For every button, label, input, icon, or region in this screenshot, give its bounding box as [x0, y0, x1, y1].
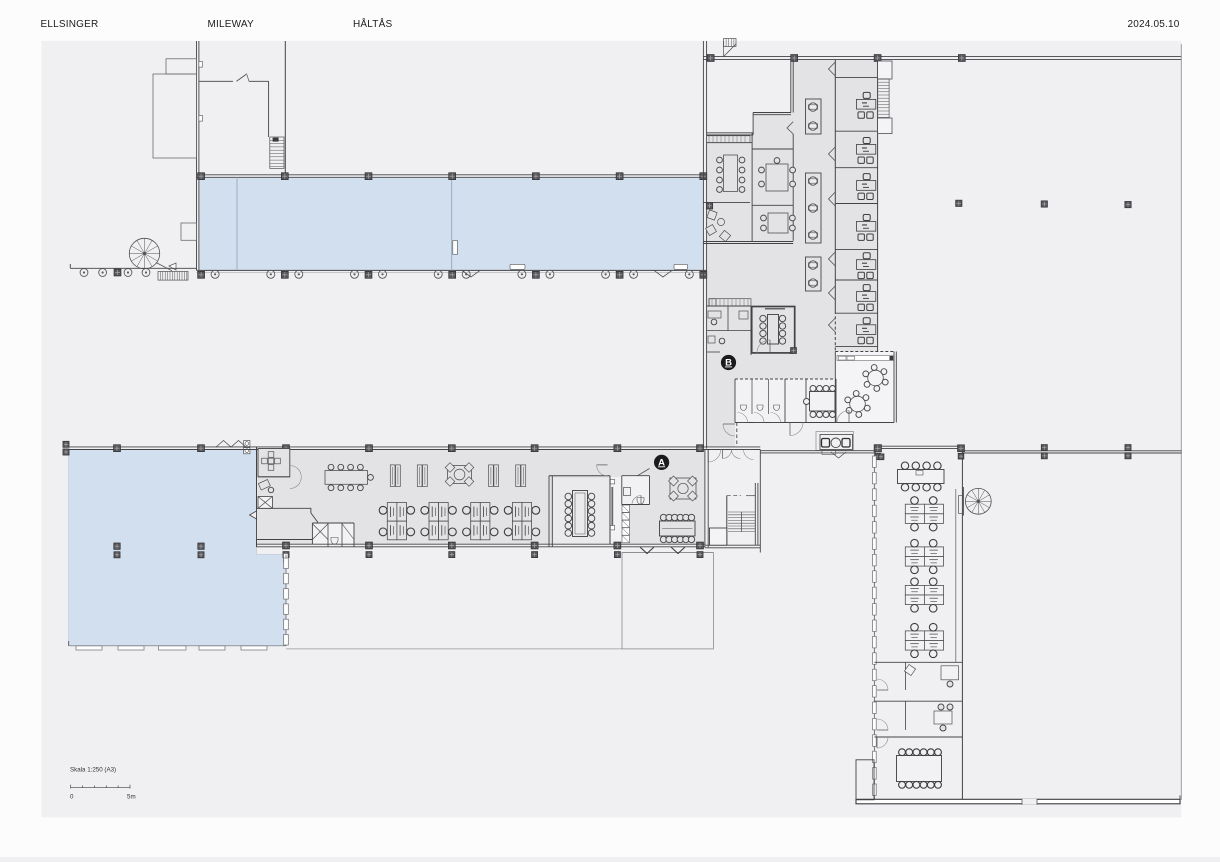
svg-text:MILEWAY: MILEWAY [208, 19, 255, 30]
svg-text:0: 0 [70, 794, 74, 801]
svg-text:HÅLTÅS: HÅLTÅS [353, 17, 392, 30]
svg-text:ELLSINGER: ELLSINGER [41, 19, 99, 30]
svg-text:5m: 5m [127, 794, 136, 801]
svg-text:Skala 1:250 (A3): Skala 1:250 (A3) [70, 767, 116, 774]
svg-text:2024.05.10: 2024.05.10 [1127, 19, 1179, 30]
